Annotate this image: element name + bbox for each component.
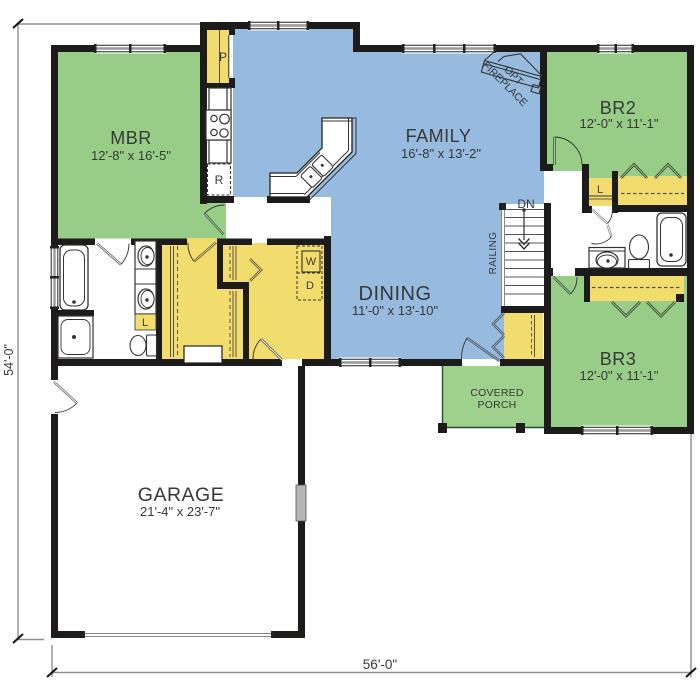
svg-text:12'-0" x 11'-1": 12'-0" x 11'-1" (580, 116, 659, 131)
svg-text:BR2: BR2 (600, 98, 637, 118)
svg-text:RAILING: RAILING (488, 232, 499, 275)
svg-text:16'-8" x 13'-2": 16'-8" x 13'-2" (401, 146, 481, 161)
svg-text:56'-0": 56'-0" (363, 657, 398, 672)
svg-text:P: P (219, 50, 227, 64)
svg-text:COVERED: COVERED (470, 387, 524, 399)
svg-text:11'-0" x 13'-10": 11'-0" x 13'-10" (352, 303, 439, 318)
svg-text:MBR: MBR (110, 128, 152, 148)
svg-text:FAMILY: FAMILY (406, 126, 472, 146)
svg-text:PORCH: PORCH (478, 399, 517, 411)
svg-text:21'-4" x 23'-7": 21'-4" x 23'-7" (140, 504, 220, 519)
svg-text:W: W (306, 256, 317, 268)
svg-text:L: L (142, 317, 148, 329)
svg-text:R: R (215, 173, 224, 187)
svg-text:DN: DN (517, 197, 534, 211)
svg-text:GARAGE: GARAGE (138, 484, 224, 506)
svg-text:12'-8" x 16'-5": 12'-8" x 16'-5" (91, 148, 171, 163)
svg-text:BR3: BR3 (600, 349, 637, 369)
svg-text:D: D (306, 280, 314, 292)
svg-text:DINING: DINING (359, 283, 432, 305)
svg-text:54'-0": 54'-0" (2, 344, 16, 376)
svg-text:12'-0" x 11'-1": 12'-0" x 11'-1" (580, 368, 659, 383)
svg-text:L: L (597, 184, 603, 196)
